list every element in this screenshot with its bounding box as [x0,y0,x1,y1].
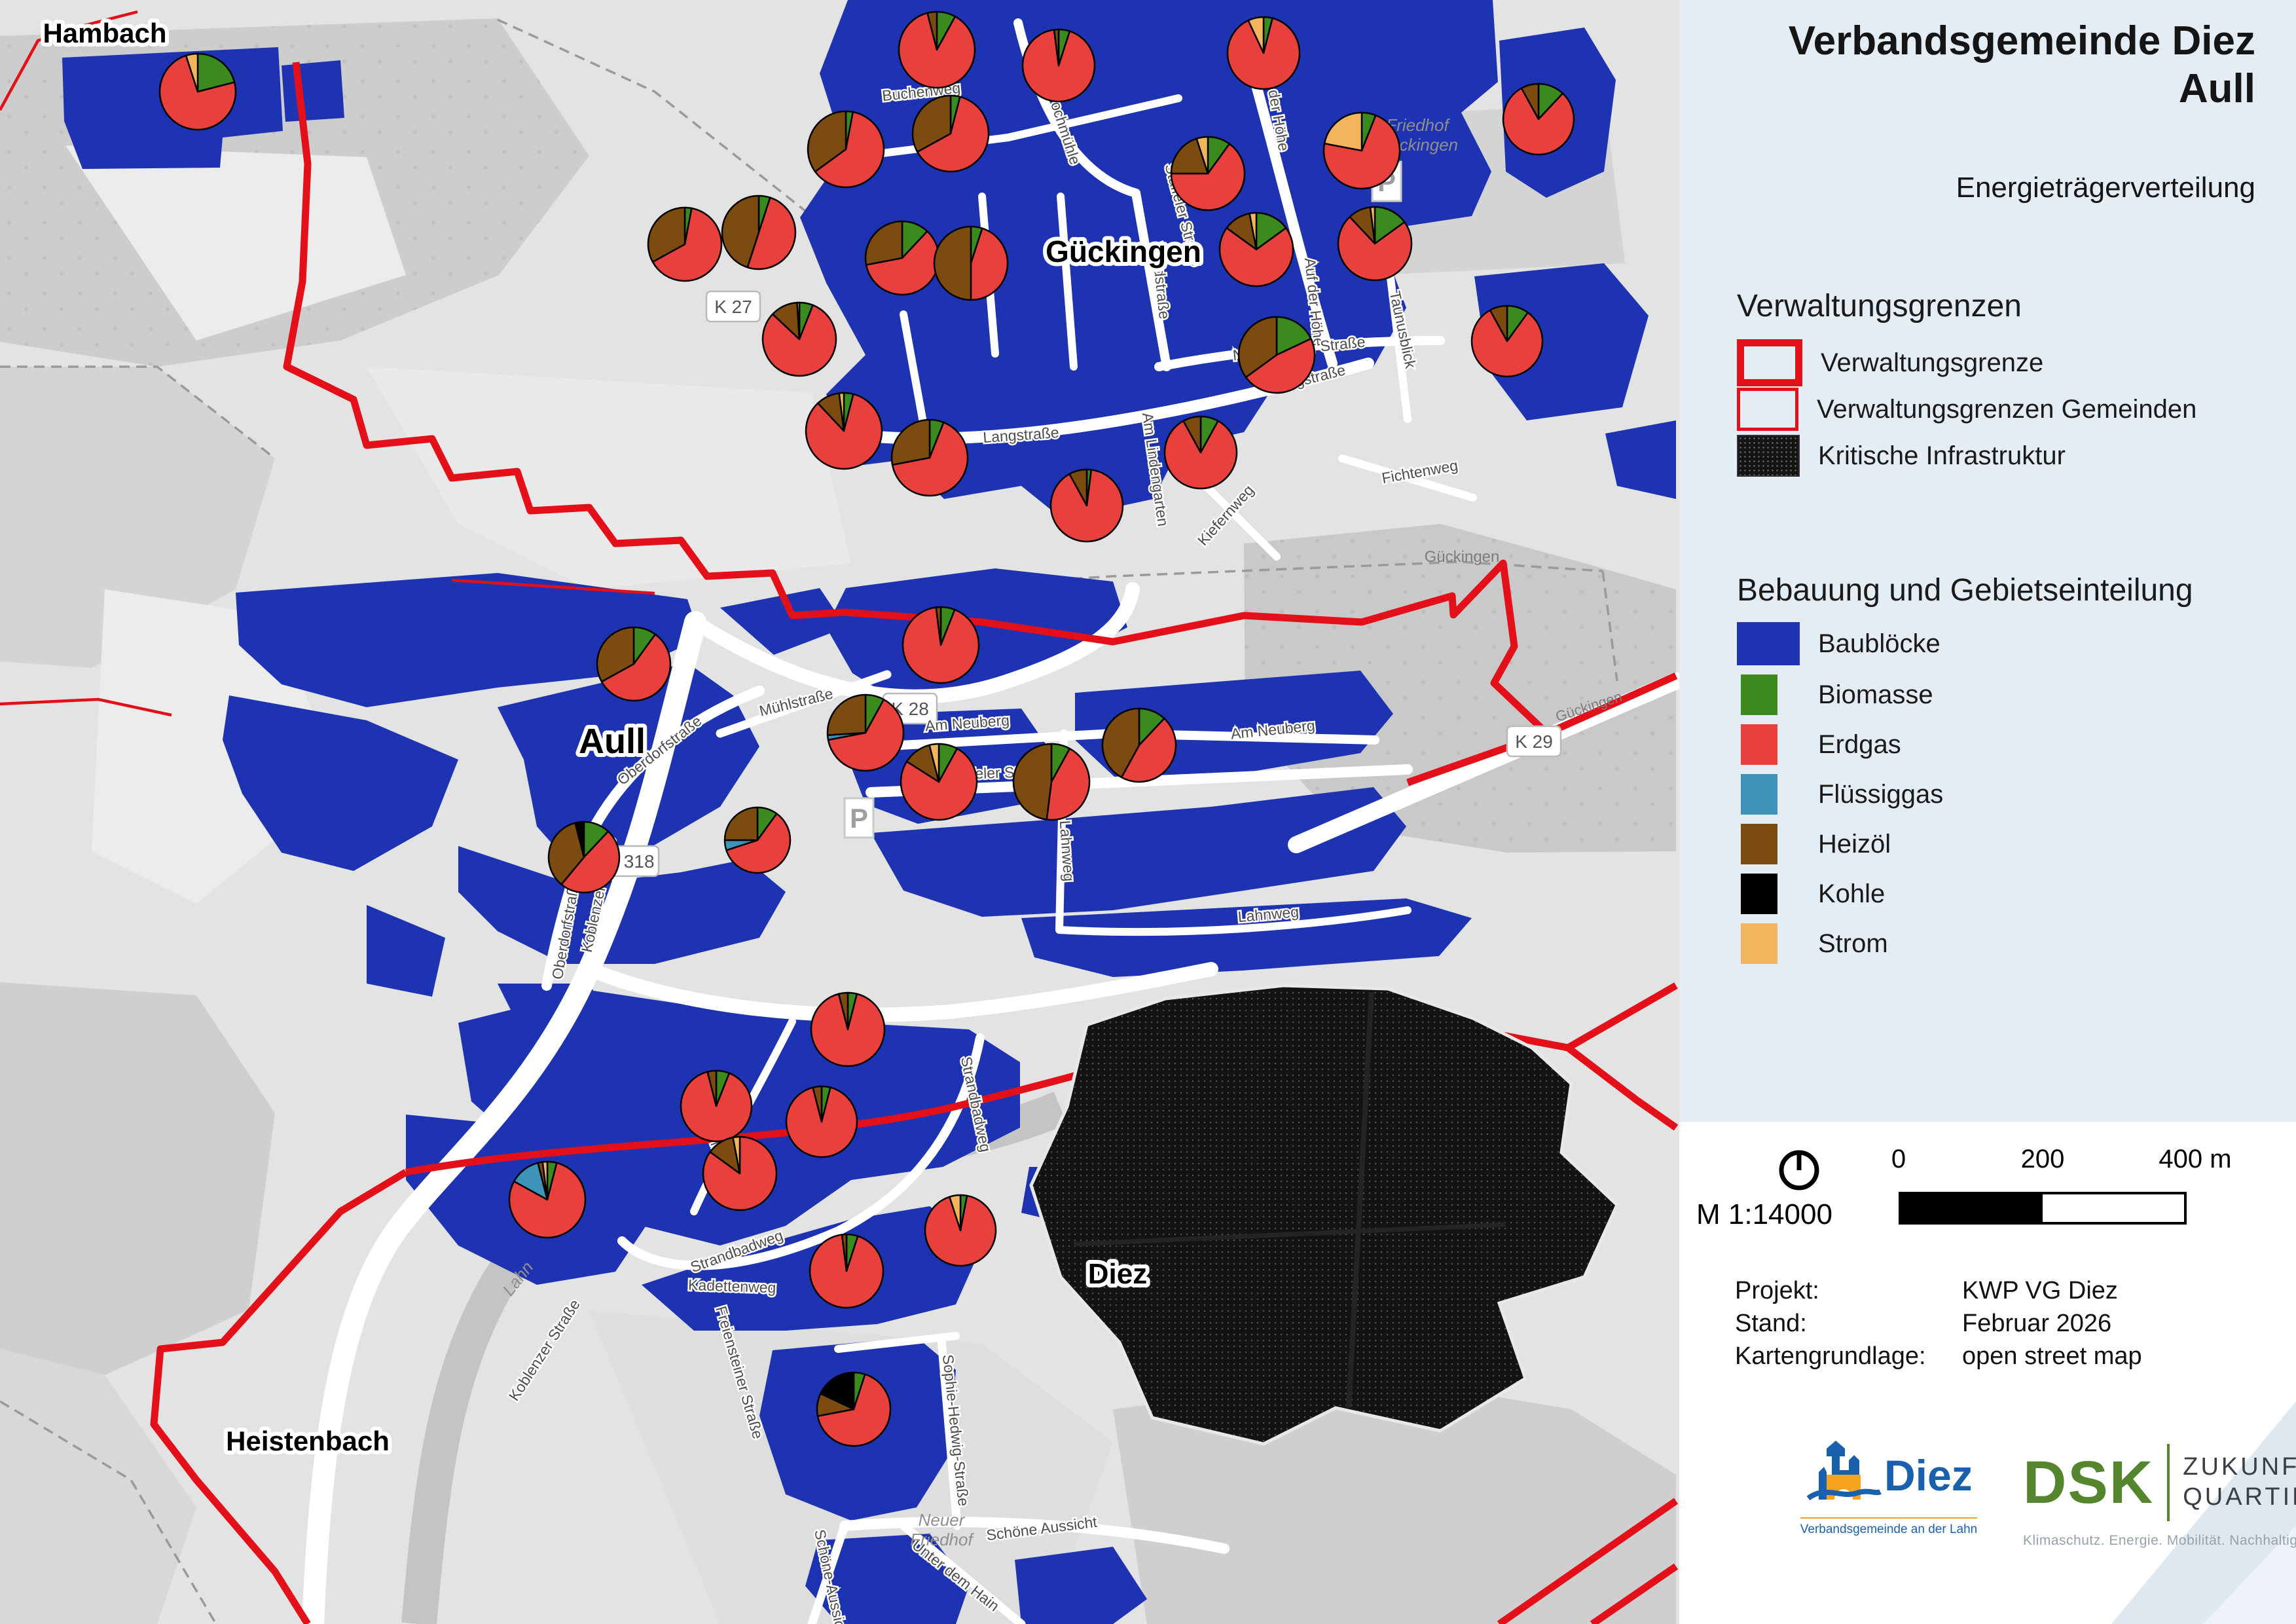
dsk-claim: ZUKUNFT QUARTIER [2183,1452,2296,1512]
energy-pie-chart [1171,137,1245,210]
diez-logo-subtitle: Verbandsgemeinde an der Lahn [1800,1517,1977,1537]
baubloecke-swatch [1737,622,1800,665]
energy-pie-chart [903,607,979,683]
legend-item-baubloecke: Baublöcke [1737,622,1941,665]
energy-pie-chart [1228,17,1300,89]
energy-pie-chart [899,12,975,88]
page-title-line2: Aull [1789,65,2255,113]
energy-pie-chart [509,1162,585,1238]
north-arrow-icon [1777,1149,1821,1192]
energy-pie-chart [160,54,236,130]
legend-item-kritische-infrastruktur: Kritische Infrastruktur [1737,435,2066,477]
energy-pie-chart [1324,113,1400,189]
street-label: Koblenzer Straße [505,1297,583,1404]
legend-item-heizoel: Heizöl [1737,824,1891,864]
minor-place-label: Gückingen [1425,548,1500,566]
area-label: Friedhof [1386,115,1450,135]
legend-item-verwaltungsgrenzen-gemeinden: Verwaltungsgrenzen Gemeinden [1737,388,2196,431]
energy-pie-chart [722,196,795,269]
energy-pie-chart [1051,470,1123,542]
area-label: Friedhof [910,1530,974,1549]
street-label: Kiefernweg [1194,481,1257,549]
legend-panel: Verbandsgemeinde Diez Aull Energieträger… [1679,0,2296,1624]
scale-bar [1899,1192,2187,1225]
energy-pie-chart [892,420,968,496]
energy-pie-chart [811,993,884,1066]
meta-kartengrundlage: Kartengrundlage:open street map [1735,1342,1926,1371]
svg-text:Diez: Diez [1884,1451,1971,1500]
page-title: Verbandsgemeinde Diez Aull [1789,17,2255,113]
landuse-section-heading: Bebauung und Gebietseinteilung [1737,572,2193,608]
energy-pie-chart [1472,306,1542,377]
energy-pie-chart [1503,84,1574,155]
erdgas-swatch [1741,724,1777,765]
energy-pie-chart [597,627,670,701]
energy-pie-chart [703,1137,776,1210]
energy-pie-chart [810,1234,883,1308]
street-label: Kadettenweg [688,1276,776,1297]
energy-pie-chart [934,227,1008,300]
energy-pie-chart [828,695,903,771]
road-shield: K 27 [706,291,760,322]
town-label: Diez [1088,1258,1147,1290]
scale-tick-400: 400 m [2159,1145,2231,1174]
energy-pie-chart [1165,416,1237,489]
energy-pie-chart [1013,744,1089,820]
energy-pie-chart [817,1373,890,1446]
kohle-swatch [1741,874,1777,914]
map-base: K 27K 28K 29L 318PPBuchenwegIn der Fochm… [0,0,1679,1624]
energy-pie-chart [925,1195,996,1266]
page-title-line1: Verbandsgemeinde Diez [1789,17,2255,65]
road-shield: K 29 [1507,726,1561,756]
energy-pie-chart [681,1071,752,1141]
gemeinden-swatch [1737,388,1798,431]
area-label: Neuer [919,1510,966,1530]
legend-item-fluessiggas: Flüssiggas [1737,774,1943,815]
kritische-infrastruktur-swatch [1737,435,1800,477]
svg-text:K 29: K 29 [1515,731,1553,752]
energy-pie-chart [1023,29,1095,101]
scale-tick-200: 200 [2021,1145,2065,1174]
energy-pie-chart [901,744,977,820]
map-canvas: K 27K 28K 29L 318PPBuchenwegIn der Fochm… [0,0,1679,1624]
energy-pie-chart [866,221,939,295]
svg-text:P: P [850,803,868,834]
kritische-infrastruktur-area [1031,986,1617,1444]
legend-item-kohle: Kohle [1737,874,1885,914]
dsk-divider [2167,1444,2170,1521]
energy-pie-chart [648,208,721,281]
energy-pie-chart [808,111,884,187]
heizoel-swatch [1741,824,1777,864]
dsk-logo: DSK ZUKUNFT QUARTIER Klimaschutz. Energi… [2023,1444,2296,1549]
fluessiggas-swatch [1741,774,1777,815]
energy-pie-chart [549,822,619,893]
town-label: Heistenbach [226,1426,390,1456]
energy-pie-chart [763,303,836,376]
energy-pie-chart [786,1086,857,1157]
dsk-tagline: Klimaschutz. Energie. Mobilität. Nachhal… [2023,1533,2296,1549]
legend-item-verwaltungsgrenze: Verwaltungsgrenze [1737,339,2043,386]
diez-logo: Diez Verbandsgemeinde an der Lahn [1794,1434,1984,1537]
scale-tick-0: 0 [1891,1145,1906,1174]
legend-item-biomasse: Biomasse [1737,674,1933,715]
energy-pie-chart [725,807,790,873]
energy-pie-chart [913,96,989,172]
legend-item-strom: Strom [1737,923,1888,964]
energy-pie-chart [1338,207,1412,280]
street-label: Mühlstraße [757,685,835,720]
biomasse-swatch [1741,674,1777,715]
parking-icon: P [845,798,873,838]
legend-item-erdgas: Erdgas [1737,724,1901,765]
energy-pie-chart [1239,317,1315,393]
verwaltungsgrenze-swatch [1737,339,1802,386]
energy-pie-chart [806,393,882,469]
diez-castle-icon: Diez [1807,1434,1971,1513]
strom-swatch [1741,923,1777,964]
legend-panel-blue: Verbandsgemeinde Diez Aull Energieträger… [1679,0,2296,1122]
meta-stand: Stand:Februar 2026 [1735,1310,1807,1338]
dsk-wordmark: DSK [2023,1456,2154,1510]
town-label: Gückingen [1046,234,1201,268]
admin-section-heading: Verwaltungsgrenzen [1737,288,2022,324]
energy-pie-chart [1220,213,1293,286]
page: K 27K 28K 29L 318PPBuchenwegIn der Fochm… [0,0,2296,1624]
energy-pie-chart [1102,709,1176,782]
scale-ratio: M 1:14000 [1696,1198,1832,1231]
town-label: Hambach [43,18,166,48]
svg-text:K 27: K 27 [714,297,752,317]
page-subtitle: Energieträgerverteilung [1956,172,2255,204]
meta-projekt: Projekt:KWP VG Diez [1735,1277,1819,1305]
town-label: Aull [579,722,646,761]
